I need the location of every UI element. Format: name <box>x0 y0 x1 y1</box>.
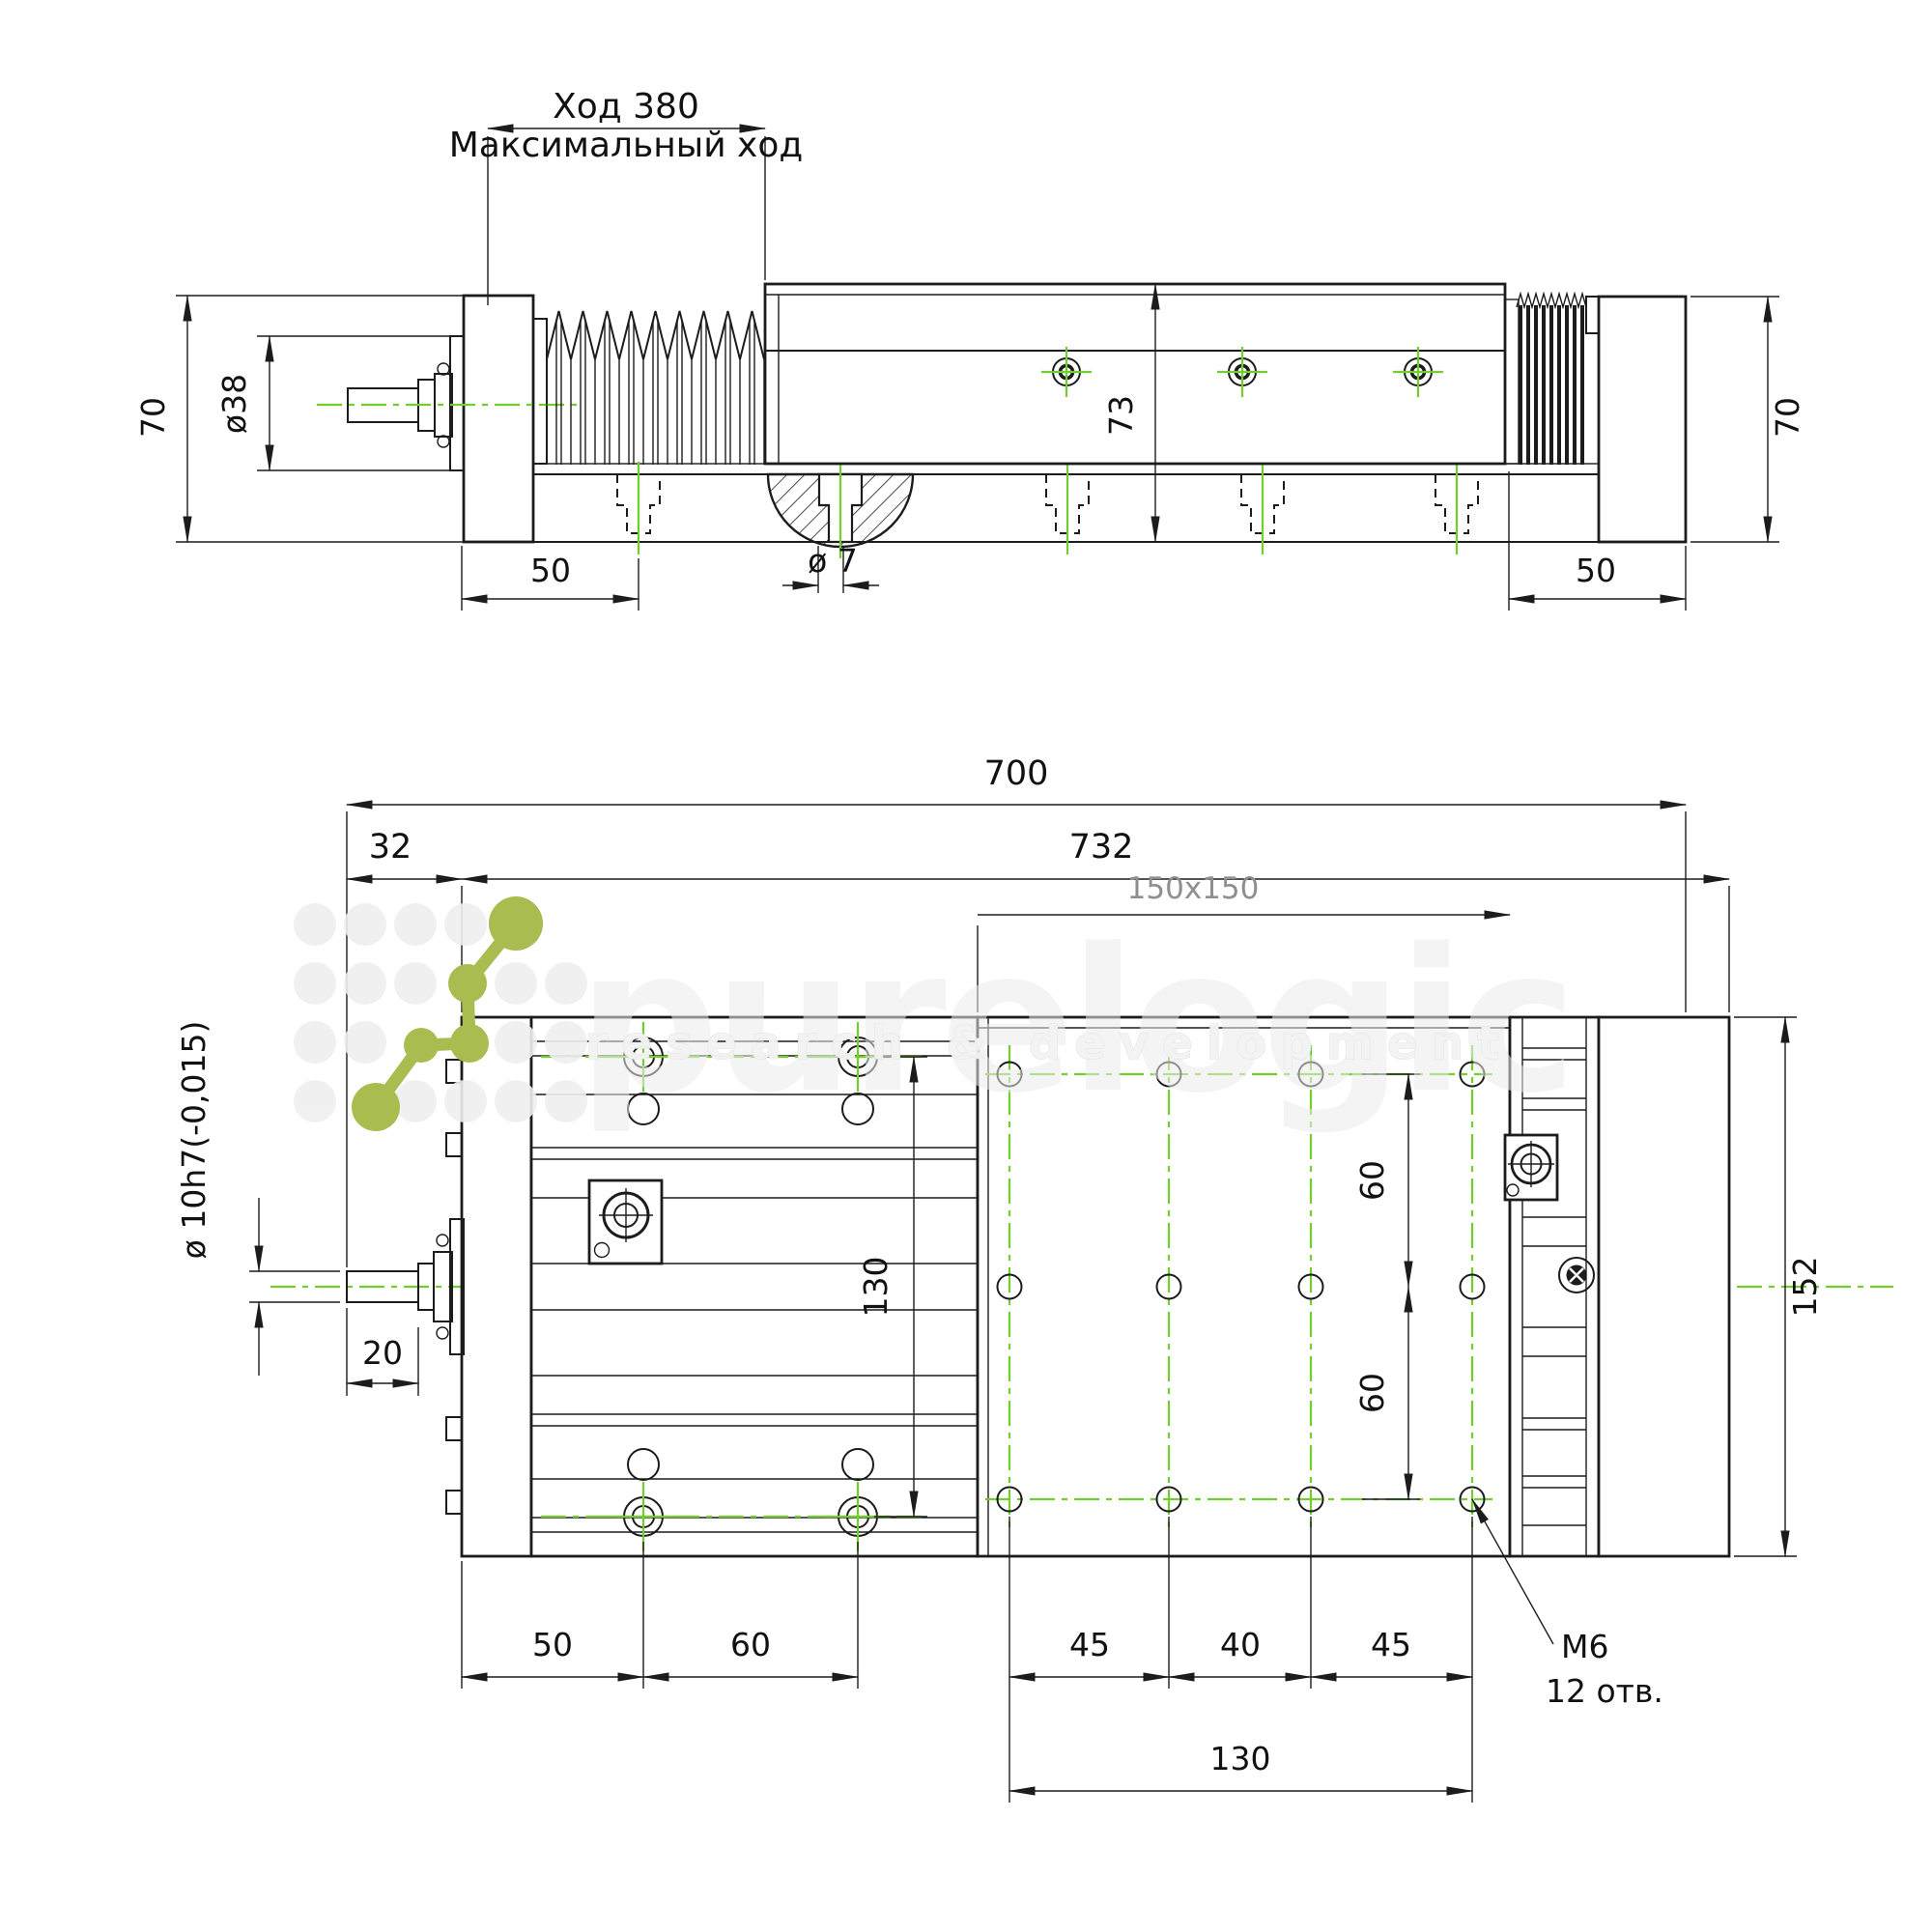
dim-row-spacing-top: 60 <box>1353 1160 1391 1201</box>
dim-shaft-length: 20 <box>362 1334 403 1372</box>
bellows-folds <box>547 321 764 465</box>
dim-table-height: 152 <box>1786 1257 1824 1318</box>
dim-extended-length: 732 <box>1069 828 1134 867</box>
motor-shaft-side <box>317 336 580 470</box>
dim-col-45b: 45 <box>1371 1626 1411 1663</box>
bellows-compressed <box>1517 294 1586 465</box>
technical-drawing: Ход 380 Максимальный ход 70 ø38 73 50 <box>0 0 1932 1932</box>
dim-base-offset-left: 50 <box>530 552 571 589</box>
dim-height-left: 70 <box>134 397 172 438</box>
dim-height-right: 70 <box>1769 397 1806 438</box>
top-view: Ход 380 Максимальный ход 70 ø38 73 50 <box>134 87 1806 611</box>
dim-stroke-note: Максимальный ход <box>449 126 804 165</box>
base-plate <box>464 474 1686 542</box>
bellows-mount-plate-left <box>533 319 547 464</box>
carriage <box>765 284 1519 464</box>
dim-thread: M6 <box>1561 1628 1608 1665</box>
base-hidden-holes <box>617 462 1478 554</box>
connector-left <box>589 1180 662 1264</box>
right-end-plate <box>1599 1017 1729 1556</box>
dim-base-offset: 50 <box>532 1626 573 1663</box>
dim-motor-shaft: ø 10h7(-0,015) <box>175 1021 213 1260</box>
dim-col-40: 40 <box>1220 1626 1261 1663</box>
dim-col-45a: 45 <box>1069 1626 1110 1663</box>
bellows-extended <box>547 311 764 465</box>
dim-table-size: 150x150 <box>1127 871 1260 906</box>
connector-right <box>1505 1135 1557 1200</box>
dim-body-hole-spacing: 130 <box>857 1257 895 1318</box>
dim-total-length: 700 <box>984 754 1049 793</box>
dim-row-spacing-bottom: 60 <box>1353 1373 1391 1413</box>
dim-profile-height: 73 <box>1102 395 1140 436</box>
dim-hole-diameter: ø 7 <box>808 542 858 580</box>
left-end-block <box>464 296 533 542</box>
logo-node-icon <box>489 896 543 951</box>
dim-holes-note: 12 отв. <box>1546 1672 1663 1710</box>
dim-col-span: 130 <box>1210 1740 1271 1777</box>
right-end-block <box>1586 297 1686 542</box>
dim-shaft-diameter: ø38 <box>215 374 253 434</box>
rail-strip <box>533 464 1599 474</box>
watermark-tagline-text: research & development <box>585 1017 1513 1070</box>
dim-base-hole-spacing: 60 <box>730 1626 771 1663</box>
dim-stroke: Ход 380 <box>553 87 699 127</box>
dim-base-offset-right: 50 <box>1576 552 1616 589</box>
drawing-canvas: Ход 380 Максимальный ход 70 ø38 73 50 <box>0 0 1932 1932</box>
dim-shaft-offset: 32 <box>369 828 412 867</box>
